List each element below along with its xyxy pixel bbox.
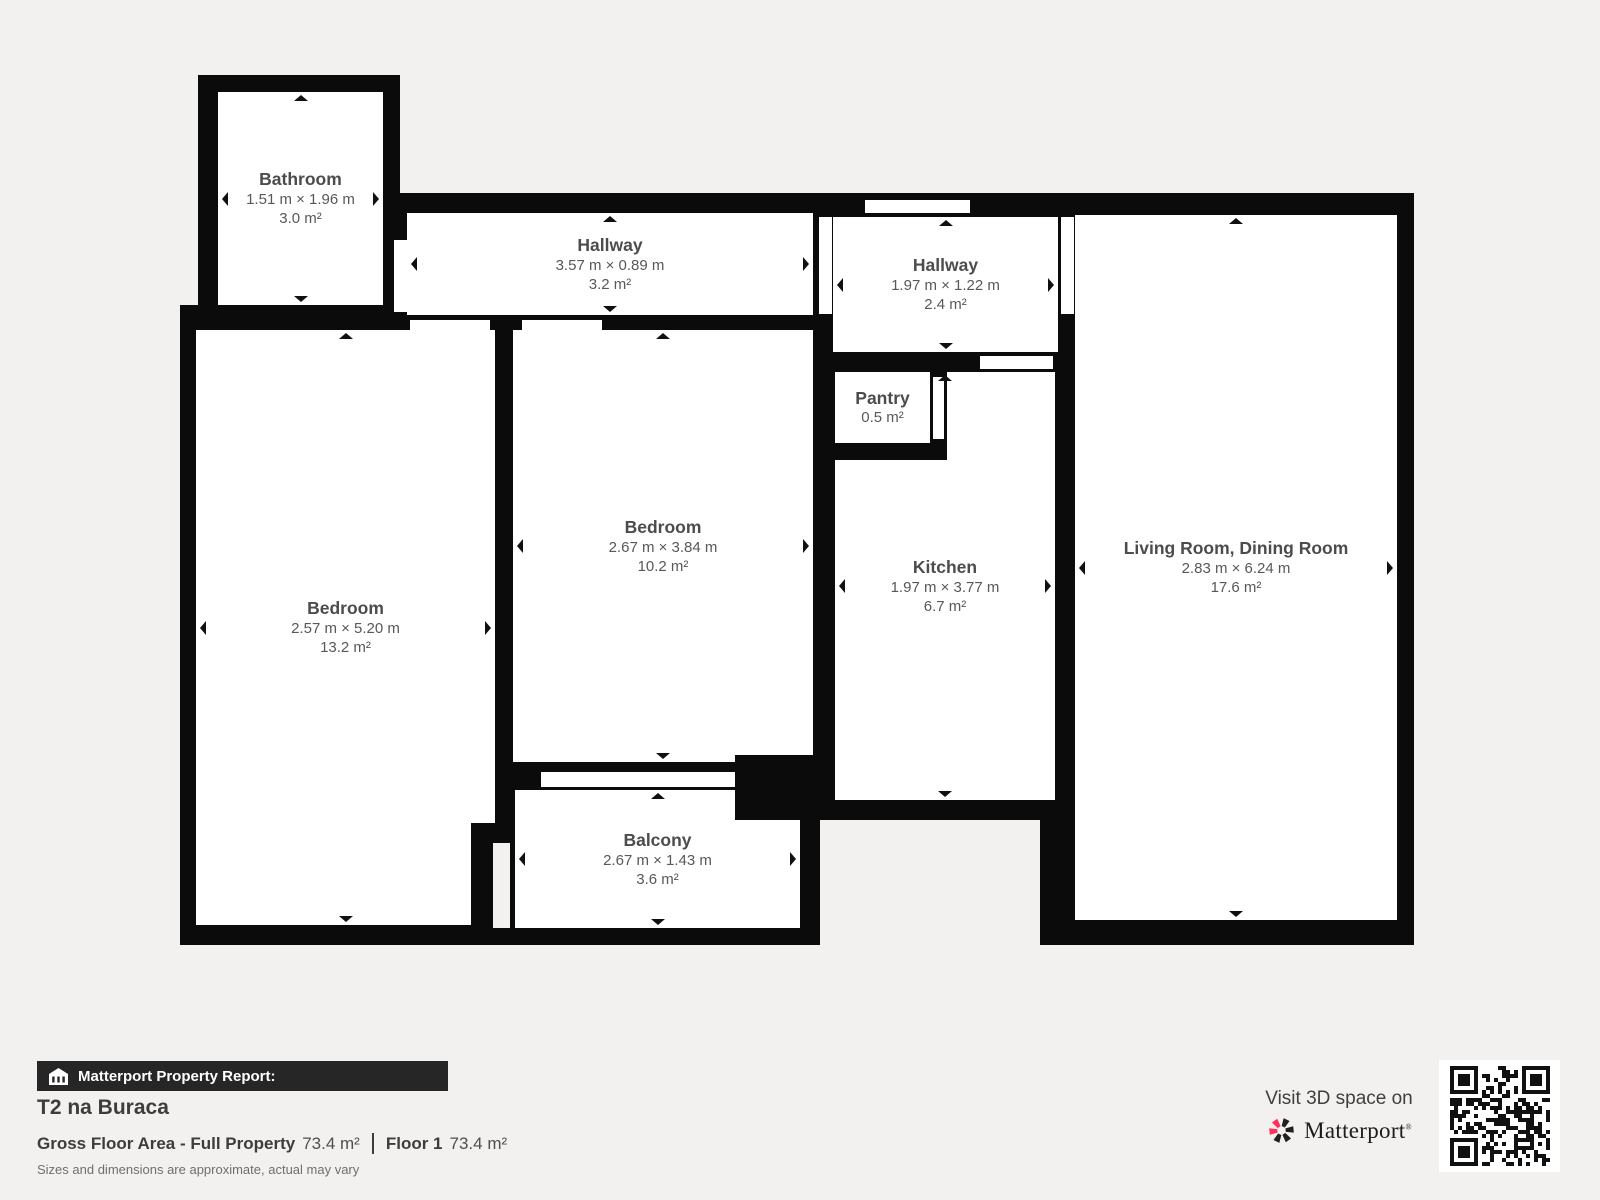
- qr-code: [1450, 1066, 1550, 1166]
- measure-arrow-left-icon: [839, 579, 845, 593]
- room-hallway-top: Hallway 3.57 m × 0.89 m 3.2 m²: [407, 213, 813, 315]
- measure-arrow-up-icon: [938, 375, 952, 381]
- room-name: Hallway: [913, 255, 978, 275]
- measure-arrow-down-icon: [656, 753, 670, 759]
- floor-area-line: Gross Floor Area - Full Property 73.4 m²…: [37, 1133, 507, 1154]
- measure-arrow-up-icon: [1229, 218, 1243, 224]
- room-balcony: Balcony 2.67 m × 1.43 m 3.6 m²: [515, 790, 800, 928]
- qr-code-card: [1439, 1060, 1560, 1172]
- door-opening: [394, 240, 407, 312]
- room-label: Bedroom 2.57 m × 5.20 m 13.2 m²: [196, 330, 495, 925]
- measure-arrow-right-icon: [803, 539, 809, 553]
- floor-value: 73.4 m²: [450, 1134, 508, 1154]
- sliding-door-opening: [541, 772, 735, 787]
- room-label: Bedroom 2.67 m × 3.84 m 10.2 m²: [513, 330, 813, 762]
- room-area: 6.7 m²: [924, 597, 967, 616]
- matterport-pinwheel-icon: [1266, 1115, 1297, 1146]
- measure-arrow-up-icon: [939, 220, 953, 226]
- measure-arrow-right-icon: [803, 257, 809, 271]
- outside-gap: [493, 843, 510, 928]
- floor-label: Floor 1: [386, 1134, 443, 1154]
- room-area: 3.2 m²: [589, 275, 632, 294]
- room-living-room: Living Room, Dining Room 2.83 m × 6.24 m…: [1075, 215, 1397, 920]
- room-name: Bedroom: [307, 598, 384, 618]
- room-name: Living Room, Dining Room: [1124, 538, 1349, 558]
- entrance-door-opening: [865, 200, 970, 213]
- measure-arrow-right-icon: [1045, 579, 1051, 593]
- measure-arrow-down-icon: [603, 306, 617, 312]
- room-name: Bedroom: [625, 517, 702, 537]
- report-label: Matterport Property Report:: [78, 1068, 276, 1085]
- measure-arrow-left-icon: [517, 539, 523, 553]
- measure-arrow-right-icon: [485, 621, 491, 635]
- measure-arrow-down-icon: [939, 343, 953, 349]
- measure-arrow-up-icon: [603, 216, 617, 222]
- measure-arrow-right-icon: [1048, 278, 1054, 292]
- floor-plan: Bathroom 1.51 m × 1.96 m 3.0 m² Hallway …: [0, 0, 1600, 1200]
- measure-arrow-down-icon: [294, 296, 308, 302]
- room-name: Hallway: [577, 235, 642, 255]
- gross-area-value: 73.4 m²: [302, 1134, 360, 1154]
- report-header-bar: Matterport Property Report:: [37, 1061, 448, 1091]
- door-opening: [819, 217, 832, 314]
- room-dimensions: 1.51 m × 1.96 m: [246, 190, 355, 209]
- building-icon: [49, 1068, 68, 1085]
- measure-arrow-left-icon: [837, 278, 843, 292]
- room-label: Balcony 2.67 m × 1.43 m 3.6 m²: [515, 790, 800, 928]
- room-area: 13.2 m²: [320, 638, 371, 657]
- measure-arrow-right-icon: [373, 192, 379, 206]
- measure-arrow-right-icon: [1387, 561, 1393, 575]
- room-name: Bathroom: [259, 169, 342, 189]
- measure-arrow-left-icon: [222, 192, 228, 206]
- disclaimer: Sizes and dimensions are approximate, ac…: [37, 1162, 359, 1177]
- room-label: Hallway 3.57 m × 0.89 m 3.2 m²: [407, 213, 813, 315]
- room-name: Balcony: [623, 830, 691, 850]
- room-label: Kitchen 1.97 m × 3.77 m 6.7 m²: [835, 372, 1055, 800]
- room-label: Living Room, Dining Room 2.83 m × 6.24 m…: [1075, 215, 1397, 920]
- room-area: 3.6 m²: [636, 870, 679, 889]
- trademark-symbol: ®: [1405, 1122, 1411, 1131]
- measure-arrow-up-icon: [656, 333, 670, 339]
- room-area: 10.2 m²: [638, 557, 689, 576]
- room-label: Bathroom 1.51 m × 1.96 m 3.0 m²: [218, 92, 383, 305]
- measure-arrow-left-icon: [519, 852, 525, 866]
- measure-arrow-left-icon: [1079, 561, 1085, 575]
- room-dimensions: 1.97 m × 1.22 m: [891, 276, 1000, 295]
- property-name: T2 na Buraca: [37, 1096, 169, 1120]
- room-dimensions: 2.67 m × 3.84 m: [609, 538, 718, 557]
- door-opening: [1061, 217, 1074, 314]
- room-dimensions: 3.57 m × 0.89 m: [556, 256, 665, 275]
- measure-arrow-down-icon: [1229, 911, 1243, 917]
- measure-arrow-down-icon: [339, 916, 353, 922]
- door-opening: [980, 356, 1053, 369]
- room-dimensions: 1.97 m × 3.77 m: [891, 578, 1000, 597]
- room-bedroom-center: Bedroom 2.67 m × 3.84 m 10.2 m²: [513, 330, 813, 762]
- measure-arrow-up-icon: [651, 793, 665, 799]
- measure-arrow-left-icon: [200, 621, 206, 635]
- room-dimensions: 2.67 m × 1.43 m: [603, 851, 712, 870]
- matterport-logo: Matterport®: [1254, 1115, 1424, 1146]
- visit-text: Visit 3D space on: [1254, 1088, 1424, 1110]
- room-hallway-right: Hallway 1.97 m × 1.22 m 2.4 m²: [833, 217, 1058, 352]
- gross-area-label: Gross Floor Area - Full Property: [37, 1134, 295, 1154]
- room-kitchen: Kitchen 1.97 m × 3.77 m 6.7 m²: [835, 372, 1055, 800]
- room-name: Kitchen: [913, 557, 977, 577]
- room-area: 17.6 m²: [1211, 578, 1262, 597]
- measure-arrow-right-icon: [790, 852, 796, 866]
- room-dimensions: 2.83 m × 6.24 m: [1182, 559, 1291, 578]
- room-area: 2.4 m²: [924, 295, 967, 314]
- room-label: Hallway 1.97 m × 1.22 m 2.4 m²: [833, 217, 1058, 352]
- measure-arrow-down-icon: [938, 791, 952, 797]
- measure-arrow-up-icon: [294, 95, 308, 101]
- measure-arrow-down-icon: [651, 919, 665, 925]
- measure-arrow-left-icon: [411, 257, 417, 271]
- measure-arrow-up-icon: [339, 333, 353, 339]
- divider: [372, 1133, 374, 1154]
- property-report: { "rooms": [ {"id":"bathroom","name":"Ba…: [0, 0, 1600, 1200]
- room-dimensions: 2.57 m × 5.20 m: [291, 619, 400, 638]
- room-bedroom-left: Bedroom 2.57 m × 5.20 m 13.2 m²: [196, 330, 495, 925]
- visit-3d-cta: Visit 3D space on Matterport®: [1254, 1088, 1424, 1146]
- room-area: 3.0 m²: [279, 209, 322, 228]
- room-bathroom: Bathroom 1.51 m × 1.96 m 3.0 m²: [218, 92, 383, 305]
- matterport-wordmark: Matterport®: [1304, 1118, 1412, 1144]
